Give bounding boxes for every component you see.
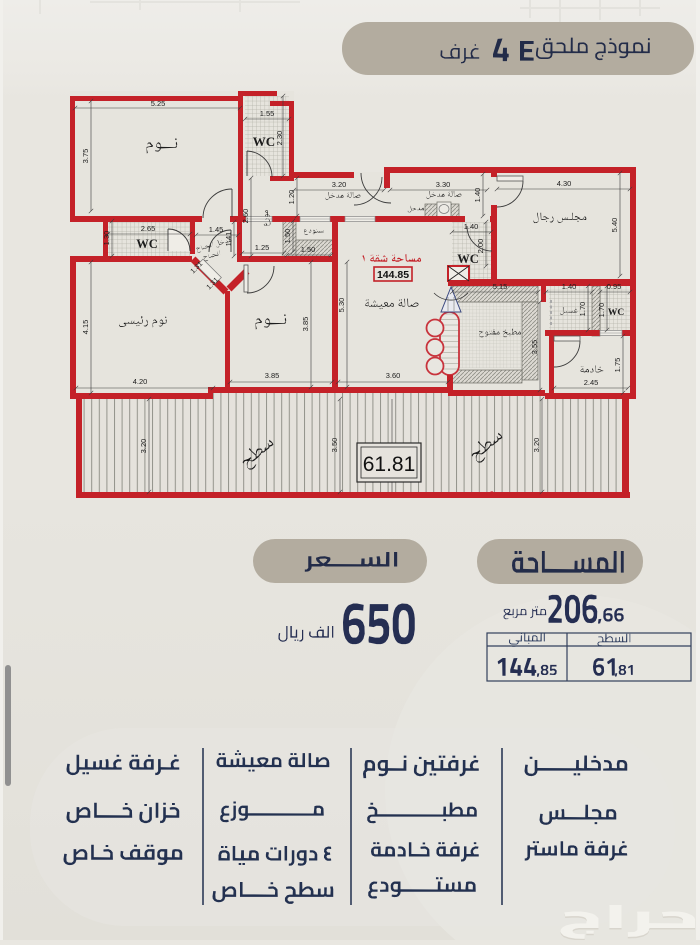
svg-text:3.60: 3.60 [386,371,401,380]
svg-text:2.65: 2.65 [141,224,156,233]
svg-text:2.60: 2.60 [241,209,250,224]
svg-text:61.81: 61.81 [363,453,416,476]
svg-text:1.41: 1.41 [224,232,233,247]
svg-text:3.50: 3.50 [330,438,339,453]
svg-text:1.50: 1.50 [283,229,292,244]
svg-text:0.95: 0.95 [607,282,622,291]
svg-text:3.55: 3.55 [530,340,539,355]
svg-text:WC: WC [253,134,275,149]
svg-text:3.75: 3.75 [81,149,90,164]
svg-text:144.85: 144.85 [377,269,409,281]
svg-text:1.75: 1.75 [613,358,622,373]
svg-text:WC: WC [457,252,479,266]
svg-text:3.85: 3.85 [301,317,310,332]
svg-text:1.30: 1.30 [102,231,111,246]
svg-text:1.25: 1.25 [255,243,270,252]
svg-text:5.30: 5.30 [337,298,346,313]
svg-text:1.20: 1.20 [287,190,296,205]
svg-text:4.20: 4.20 [133,377,148,386]
svg-text:5.40: 5.40 [610,218,619,233]
svg-text:4.15: 4.15 [81,320,90,335]
svg-text:2.45: 2.45 [584,378,599,387]
svg-text:3.20: 3.20 [532,438,541,453]
svg-text:1.70: 1.70 [597,303,606,318]
svg-text:3.20: 3.20 [139,439,148,454]
svg-text:5.15: 5.15 [493,282,508,291]
svg-text:WC: WC [608,308,625,318]
svg-text:1.55: 1.55 [260,109,275,118]
svg-text:WC: WC [136,237,158,251]
svg-text:1.70: 1.70 [578,302,587,317]
svg-text:1.45: 1.45 [209,225,224,234]
svg-text:3.85: 3.85 [265,371,280,380]
svg-text:4.30: 4.30 [557,179,572,188]
svg-text:2.30: 2.30 [275,131,284,146]
svg-text:1.40: 1.40 [562,282,577,291]
svg-text:3.20: 3.20 [332,180,347,189]
svg-text:1.40: 1.40 [473,188,482,203]
svg-text:5.25: 5.25 [151,99,166,108]
svg-text:3.30: 3.30 [436,180,451,189]
svg-text:1.50: 1.50 [301,245,316,254]
svg-text:1.40: 1.40 [464,222,479,231]
